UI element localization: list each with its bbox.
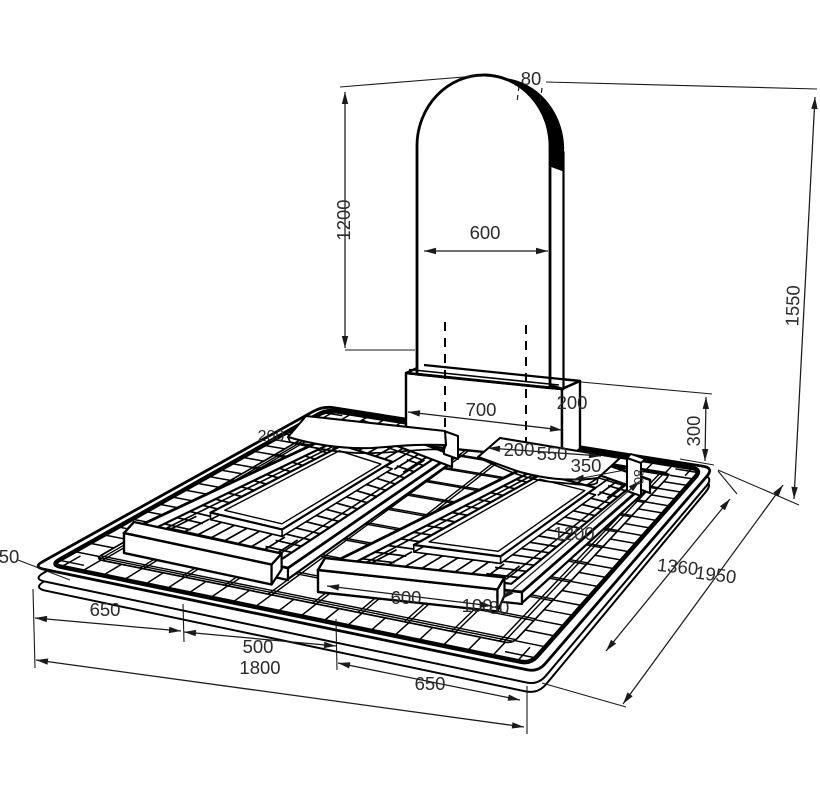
svg-text:500: 500 (243, 636, 274, 657)
svg-text:350: 350 (571, 455, 602, 476)
svg-text:650: 650 (415, 673, 446, 694)
svg-text:1550: 1550 (781, 285, 803, 327)
svg-text:1800: 1800 (239, 657, 280, 678)
svg-text:80: 80 (489, 597, 510, 618)
svg-text:1360: 1360 (656, 554, 699, 579)
svg-text:1200: 1200 (333, 199, 354, 240)
svg-text:200: 200 (557, 392, 588, 413)
svg-text:200: 200 (504, 439, 535, 460)
svg-text:50: 50 (0, 546, 19, 567)
svg-text:200: 200 (258, 428, 285, 445)
svg-text:700: 700 (466, 399, 497, 420)
svg-text:1200: 1200 (553, 523, 594, 544)
svg-text:550: 550 (537, 443, 568, 464)
svg-text:600: 600 (470, 222, 501, 243)
svg-text:650: 650 (90, 599, 121, 620)
svg-text:600: 600 (391, 587, 422, 608)
svg-text:80: 80 (521, 68, 542, 89)
svg-text:80: 80 (631, 469, 647, 485)
svg-text:300: 300 (683, 416, 704, 447)
